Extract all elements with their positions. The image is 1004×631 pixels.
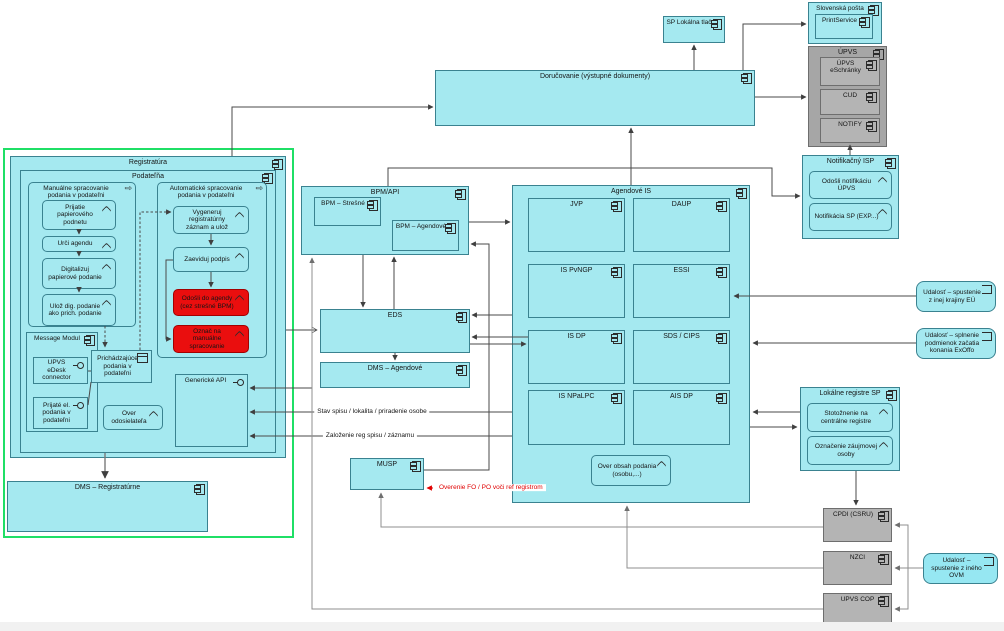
step-label: Vygeneruj registratúrny záznam a ulož: [178, 209, 236, 231]
step-label: Stotožnenie na centrálne registre: [812, 410, 880, 425]
event-icon: [984, 557, 994, 566]
component-icon: [86, 335, 95, 346]
node-daup: DAUP: [633, 198, 730, 252]
node-title: CPDI (CSRU): [826, 511, 880, 518]
node-title: PrintService: [818, 17, 861, 24]
edge-label-stav-spisu: Stav spisu / lokalita / priradenie osobe: [314, 408, 429, 415]
node-title: DAUP: [636, 201, 727, 209]
component-icon: [880, 596, 889, 607]
process-icon: [148, 409, 158, 417]
component-icon: [613, 393, 622, 404]
process-icon: [234, 293, 244, 301]
step-label: Digitalizuj papierové podanie: [47, 266, 103, 281]
node-upvs-eschranky: ÚPVS eSchránky: [820, 57, 880, 86]
step-vygeneruj-zaznam: Vygeneruj registratúrny záznam a ulož: [173, 206, 249, 234]
group-title: Manuálne spracovanie podania v podateľni: [31, 185, 121, 200]
node-title: DMS – Agendové: [323, 365, 467, 373]
component-icon: [447, 223, 456, 234]
node-title: Message Modul: [29, 335, 85, 342]
function-arrow-icon: [255, 184, 263, 193]
edge-label-zalozenie: Založenie reg spisu / záznamu: [323, 432, 417, 439]
node-title: Generické API: [178, 377, 233, 384]
component-icon: [868, 121, 877, 132]
node-bpm-stresne: BPM – Strešné: [314, 197, 381, 226]
component-icon: [887, 158, 896, 169]
component-icon: [718, 201, 727, 212]
component-icon: [880, 554, 889, 565]
edge-musp-bpm: [424, 244, 489, 470]
step-notifikacia-sp: Notifikácia SP (EXP...): [809, 203, 892, 231]
edge-dorucovanie-slovenskaposta: [743, 24, 806, 70]
step-over-odosielatela: Over odosielateľa: [103, 405, 163, 430]
node-title: EDS: [323, 312, 467, 320]
component-icon: [613, 201, 622, 212]
node-genericke-api: Generické API: [175, 374, 248, 447]
node-nzci: NZCI: [823, 551, 892, 585]
node-sp-lokalna-tlac: SP Lokálna tlač: [663, 16, 725, 43]
step-label: Ulož dig. podanie ako prich. podanie: [47, 303, 103, 318]
group-title: Automatické spracovanie podania v podate…: [160, 185, 252, 200]
node-essi: ESSI: [633, 264, 730, 318]
edge-eventovm-upvscop: [895, 568, 908, 609]
step-odosli-do-agendy-alert: Odošli do agendy (cez strešné BPM): [173, 289, 249, 316]
component-icon: [868, 92, 877, 103]
component-icon: [713, 19, 722, 30]
page-edge: [0, 622, 1004, 631]
node-jvp: JVP: [528, 198, 625, 252]
process-icon: [101, 262, 111, 270]
component-icon: [274, 159, 283, 170]
event-spustenie-z-inej-krajiny-eu: Udalosť – spustenie z inej krajiny EÚ: [916, 281, 996, 312]
process-icon: [101, 241, 111, 249]
node-title: ESSI: [636, 267, 727, 275]
component-icon: [738, 188, 747, 199]
edge-nzci-agendoveis: [627, 506, 823, 568]
process-icon: [101, 204, 111, 212]
node-ais-dp: AIS DP: [633, 390, 730, 445]
component-icon: [888, 390, 897, 401]
node-title: AIS DP: [636, 393, 727, 401]
node-title: IS NPaLPC: [531, 393, 622, 401]
step-label: Over odosielateľa: [108, 410, 150, 425]
step-label: Odošli do agendy (cez strešné BPM): [178, 295, 236, 310]
node-title: Doručovanie (výstupné dokumenty): [438, 73, 752, 81]
function-arrow-icon: [124, 184, 132, 193]
component-icon: [369, 200, 378, 211]
node-title: Podateľňa: [23, 173, 273, 181]
node-notify: NOTIFY: [820, 118, 880, 143]
step-uloz-dig-podanie: Ulož dig. podanie ako prich. podanie: [42, 294, 116, 326]
node-cud: CUD: [820, 89, 880, 115]
component-icon: [457, 189, 466, 200]
component-icon: [613, 267, 622, 278]
event-label: Udalosť – spustenie z iného OVM: [928, 557, 985, 579]
node-title: Slovenská pošta: [811, 5, 869, 12]
node-title: BPM/API: [304, 189, 466, 197]
event-icon: [982, 285, 992, 294]
node-title: ÚPVS eSchránky: [823, 60, 868, 75]
step-prijatie-podnetu: Prijatie papierového podnetu: [42, 200, 116, 230]
step-urci-agendu: Urči agendu: [42, 236, 116, 252]
step-digitalizuj: Digitalizuj papierové podanie: [42, 258, 116, 289]
node-dorucovanie: Doručovanie (výstupné dokumenty): [435, 70, 755, 126]
node-eds: EDS: [320, 309, 470, 353]
step-oznacenie-osoby: Označenie záujmovej osoby: [807, 436, 893, 465]
step-label: Zaeviduj podpis: [184, 256, 230, 263]
node-title: SDS / CIPS: [636, 333, 727, 341]
edge-label-overenie: Overenie FO / PO voči ref registrom: [436, 484, 546, 491]
step-label: Urči agendu: [57, 240, 92, 247]
step-zaeviduj-podpis: Zaeviduj podpis: [173, 247, 249, 272]
node-dms-agendove: DMS – Agendové: [320, 362, 470, 388]
process-icon: [878, 440, 888, 448]
interface-icon: [233, 379, 244, 386]
node-title: IS PvNGP: [531, 267, 622, 275]
step-oznac-manualne-alert: Označ na manuálne spracovanie: [173, 325, 249, 353]
node-label: Prijaté el. podania v podateľni: [38, 402, 75, 424]
step-stotoznenie: Stotožnenie na centrálne registre: [807, 403, 893, 432]
component-icon: [613, 333, 622, 344]
event-spustenie-z-ineho-ovm: Udalosť – spustenie z iného OVM: [923, 553, 998, 584]
step-label: Prijatie papierového podnetu: [47, 204, 103, 226]
archimate-diagram: Registratúra Podateľňa Manuálne spracova…: [0, 0, 1004, 631]
node-upvs-edesk-connector: UPVS eDesk connector: [33, 357, 88, 384]
component-icon: [861, 17, 870, 28]
step-label: Notifikácia SP (EXP...): [814, 213, 878, 220]
component-icon: [458, 365, 467, 376]
node-prichadzajuce-podania: Prichádzajúce podania v podateľni: [91, 350, 152, 383]
component-icon: [743, 73, 752, 84]
process-icon: [877, 207, 887, 215]
node-bpm-agendove: BPM – Agendové: [392, 220, 459, 251]
node-title: Registratúra: [13, 159, 283, 167]
process-icon: [877, 175, 887, 183]
edge-eventovm-cpdi: [895, 525, 923, 568]
component-icon: [718, 267, 727, 278]
node-title: JVP: [531, 201, 622, 209]
component-icon: [868, 60, 877, 71]
node-musp: MUSP: [350, 458, 424, 490]
step-label: Označ na manuálne spracovanie: [178, 328, 236, 350]
process-icon: [234, 251, 244, 259]
step-label: Odošli notifikáciu ÚPVS: [814, 178, 879, 193]
node-title: Agendové IS: [515, 188, 747, 196]
node-cpdi-csru: CPDI (CSRU): [823, 508, 892, 542]
process-icon: [101, 298, 111, 306]
node-title: Notifikačný ISP: [805, 158, 896, 166]
node-title: BPM – Agendové: [395, 223, 447, 230]
step-odosli-notifikaciu: Odošli notifikáciu ÚPVS: [809, 171, 892, 199]
node-dms-registraturne: DMS – Registratúrne: [7, 481, 208, 532]
node-label: UPVS eDesk connector: [38, 359, 75, 381]
node-printservice: PrintService: [815, 14, 873, 39]
step-label: Over obsah podania (osobu,...): [596, 463, 658, 478]
node-title: Lokálne registre SP: [803, 390, 897, 398]
component-icon: [196, 484, 205, 495]
node-title: IS DP: [531, 333, 622, 341]
business-object-icon: [137, 353, 148, 363]
event-label: Udalosť – spustenie z inej krajiny EÚ: [921, 289, 983, 304]
event-label: Udalosť – splnenie podmienok začatia kon…: [921, 332, 983, 354]
interface-icon: [73, 402, 84, 409]
component-icon: [718, 333, 727, 344]
node-label: Prichádzajúce podania v podateľni: [96, 355, 139, 377]
node-is-pvngp: IS PvNGP: [528, 264, 625, 318]
node-is-dp: IS DP: [528, 330, 625, 384]
step-over-obsah-podania: Over obsah podania (osobu,...): [591, 455, 671, 486]
node-is-npalpc: IS NPaLPC: [528, 390, 625, 445]
node-sds-cips: SDS / CIPS: [633, 330, 730, 384]
node-title: SP Lokálna tlač: [666, 19, 712, 26]
event-splnenie-podmienok-exoffo: Udalosť – splnenie podmienok začatia kon…: [916, 328, 996, 359]
interface-icon: [73, 362, 84, 369]
component-icon: [412, 461, 421, 472]
node-title: BPM – Strešné: [317, 200, 369, 207]
step-label: Označenie záujmovej osoby: [812, 443, 880, 458]
node-title: DMS – Registratúrne: [10, 484, 205, 492]
process-icon: [656, 459, 666, 467]
process-icon: [878, 407, 888, 415]
process-icon: [234, 210, 244, 218]
process-icon: [234, 329, 244, 337]
component-icon: [718, 393, 727, 404]
component-icon: [458, 312, 467, 323]
component-icon: [880, 511, 889, 522]
node-prijate-el-podania: Prijaté el. podania v podateľni: [33, 397, 88, 429]
event-icon: [982, 332, 992, 341]
